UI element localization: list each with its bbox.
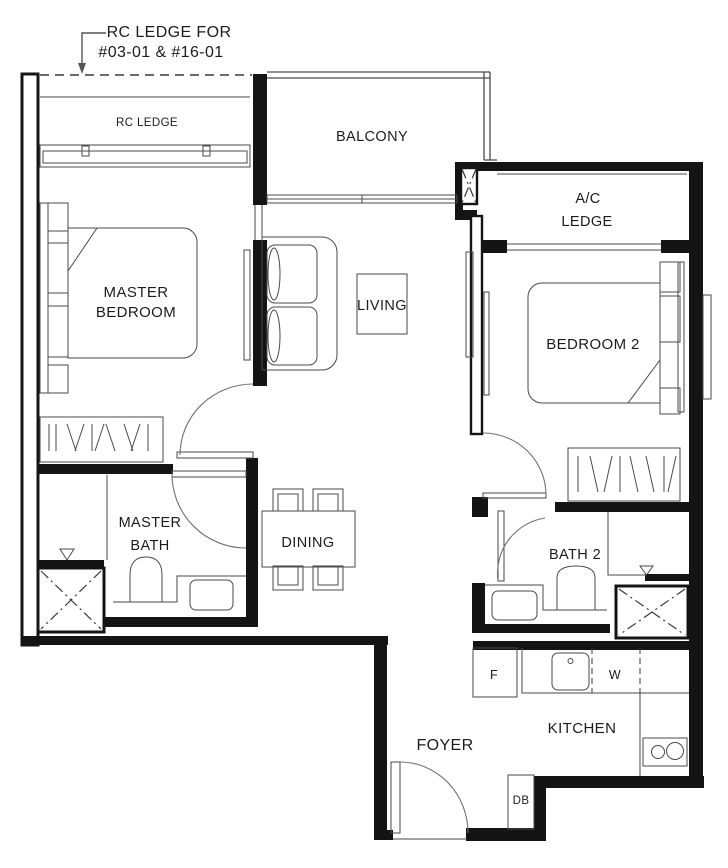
master-wardrobe-hangers	[49, 424, 148, 451]
fridge-label: F	[490, 668, 498, 682]
wall-top-post	[253, 74, 267, 205]
wall-foyer-foot	[374, 830, 393, 840]
wall-master-living	[253, 240, 267, 386]
dining-chair-3-inner	[278, 566, 298, 585]
counter-top-run	[522, 648, 640, 693]
wall-bath2-shower	[645, 574, 689, 581]
entrance-door-leaf	[391, 762, 400, 833]
master-nightstand-1	[48, 243, 68, 293]
b2-bed-fold	[628, 360, 660, 403]
wall-kitchen-bottom	[534, 776, 704, 788]
master-bedroom-label-2: BEDROOM	[96, 304, 176, 321]
counter-right-run	[640, 693, 689, 776]
kitchen-sink-tap-icon	[568, 659, 573, 664]
rc-ledge-window	[40, 145, 250, 167]
b2-door-arc	[483, 433, 546, 495]
bath2-label: BATH 2	[549, 547, 601, 563]
entrance-door-arc	[400, 762, 468, 833]
toilet-2	[557, 566, 595, 610]
floor-plan-svg: RC LEDGE FOR #03-01 & #16-01	[0, 0, 728, 868]
dining-label: DINING	[281, 535, 334, 551]
balcony-label: BALCONY	[336, 129, 408, 145]
ac-ledge-label-2: LEDGE	[561, 214, 612, 230]
wall-foyer-left	[374, 641, 387, 833]
sofa-pillow-1	[268, 248, 280, 300]
b2-right-window	[703, 295, 711, 399]
master-wardrobe	[40, 417, 163, 462]
dining-chair-2-inner	[318, 494, 338, 513]
master-bed-fold	[68, 228, 97, 271]
sink-1	[190, 580, 233, 610]
wall-masterbath-top	[38, 464, 173, 474]
wall-bedroom2-bottom	[555, 502, 689, 512]
wall-masterbath-bottom	[104, 617, 258, 627]
ac-ledge-label-1: A/C	[575, 191, 600, 207]
master-door-arc	[180, 384, 253, 455]
sofa-cushion-1	[267, 245, 317, 303]
b2-cabinet-top	[660, 262, 680, 292]
wall-kitchen-top	[473, 641, 689, 650]
sink-2	[492, 591, 537, 620]
b2-nightstand	[660, 296, 680, 342]
room-labels: RC LEDGE BALCONY A/C LEDGE MASTER BEDROO…	[96, 117, 640, 807]
b2-console	[484, 292, 489, 395]
wall-ac-bottom-left-stub	[483, 240, 507, 253]
sofa-pillow-2	[268, 310, 280, 362]
masterwall-window	[255, 205, 262, 240]
master-cabinet-top	[48, 203, 68, 231]
dining-chair-4-inner	[318, 566, 338, 585]
foyer-label: FOYER	[416, 737, 473, 754]
master-bath-label-1: MASTER	[119, 515, 182, 531]
leader-arrow-icon	[78, 63, 86, 74]
bedroom2-top-window	[507, 244, 661, 250]
bath2-door-arc	[497, 518, 545, 581]
wall-left-column	[22, 74, 38, 645]
rc-ledge-annotation: RC LEDGE FOR #03-01 & #16-01	[78, 24, 231, 74]
masterbath-door-leaf	[172, 471, 246, 477]
b2-door-leaf	[483, 493, 546, 498]
wall-masterbath-right	[246, 458, 258, 623]
balcony-railing	[267, 72, 497, 160]
floor-plan: RC LEDGE FOR #03-01 & #16-01	[0, 0, 728, 868]
b2-wardrobe	[568, 448, 680, 501]
wall-bottom-left	[22, 636, 388, 645]
master-door-leaf	[177, 452, 253, 458]
wall-ac-top	[455, 162, 689, 171]
wall-bath2-bottom	[472, 624, 610, 633]
b2-cabinet-bottom	[660, 388, 680, 414]
toilet-1	[130, 557, 162, 602]
hob-burner-1	[652, 746, 665, 759]
dining-chair-1-inner	[278, 494, 298, 513]
bath2-door-leaf	[498, 511, 504, 581]
sofa-cushion-2	[267, 307, 317, 365]
hob-burner-2	[667, 743, 684, 760]
rc-window-outer	[40, 145, 250, 167]
master-bath-label-2: BATH	[130, 538, 169, 554]
master-bedroom-label-1: MASTER	[104, 284, 169, 301]
wall-bedroom2-door-stub	[472, 497, 488, 517]
master-console	[244, 250, 250, 360]
b2-headboard	[678, 262, 684, 412]
annotation-line1: RC LEDGE FOR	[107, 24, 232, 41]
drain-icon-1	[60, 549, 74, 560]
kitchen-fixtures	[473, 648, 689, 829]
foyer-door	[391, 762, 468, 839]
balcony-sliding-door	[267, 195, 457, 203]
db-label: DB	[513, 795, 530, 807]
bedroom2-label: BEDROOM 2	[546, 336, 640, 353]
drain-icon-2	[640, 566, 653, 575]
vanity-counter-2	[485, 585, 607, 610]
washer-label: W	[609, 668, 621, 682]
master-bedroom-door	[177, 384, 253, 458]
living-label: LIVING	[357, 298, 407, 314]
annotation-line2: #03-01 & #16-01	[98, 44, 223, 61]
rc-ledge-label: RC LEDGE	[116, 117, 178, 129]
rc-window-inner	[43, 151, 247, 163]
masterbath-door-arc	[172, 474, 246, 548]
bedroom2-furniture	[483, 262, 711, 501]
master-cabinet-bottom	[48, 365, 68, 393]
master-bedroom-furniture	[40, 203, 250, 462]
kitchen-label: KITCHEN	[548, 720, 617, 737]
wall-ac-bottom-right-stub	[661, 240, 689, 253]
b2-wardrobe-hangers	[578, 456, 676, 492]
wall-right	[689, 162, 703, 788]
master-nightstand-2	[48, 306, 68, 357]
master-headboard	[40, 203, 48, 393]
